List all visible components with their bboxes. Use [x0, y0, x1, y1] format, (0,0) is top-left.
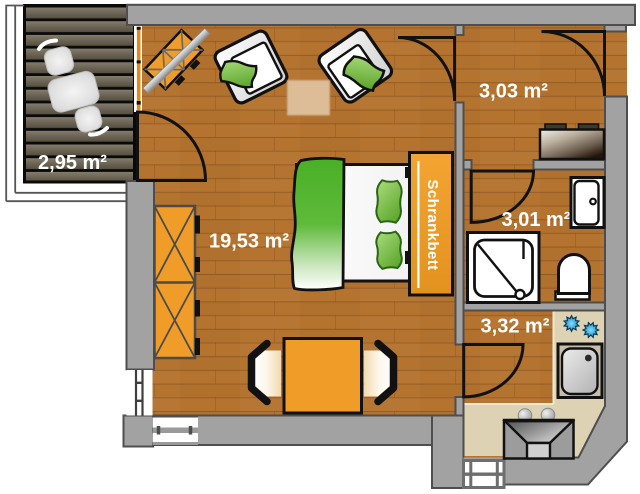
svg-text:19,53 m²: 19,53 m² [209, 231, 289, 253]
svg-text:3,01 m²: 3,01 m² [502, 209, 571, 231]
svg-text:Schrankbett: Schrankbett [424, 179, 441, 270]
svg-text:3,32 m²: 3,32 m² [481, 316, 550, 338]
svg-text:2,95 m²: 2,95 m² [38, 152, 107, 174]
svg-text:3,03 m²: 3,03 m² [479, 81, 548, 103]
